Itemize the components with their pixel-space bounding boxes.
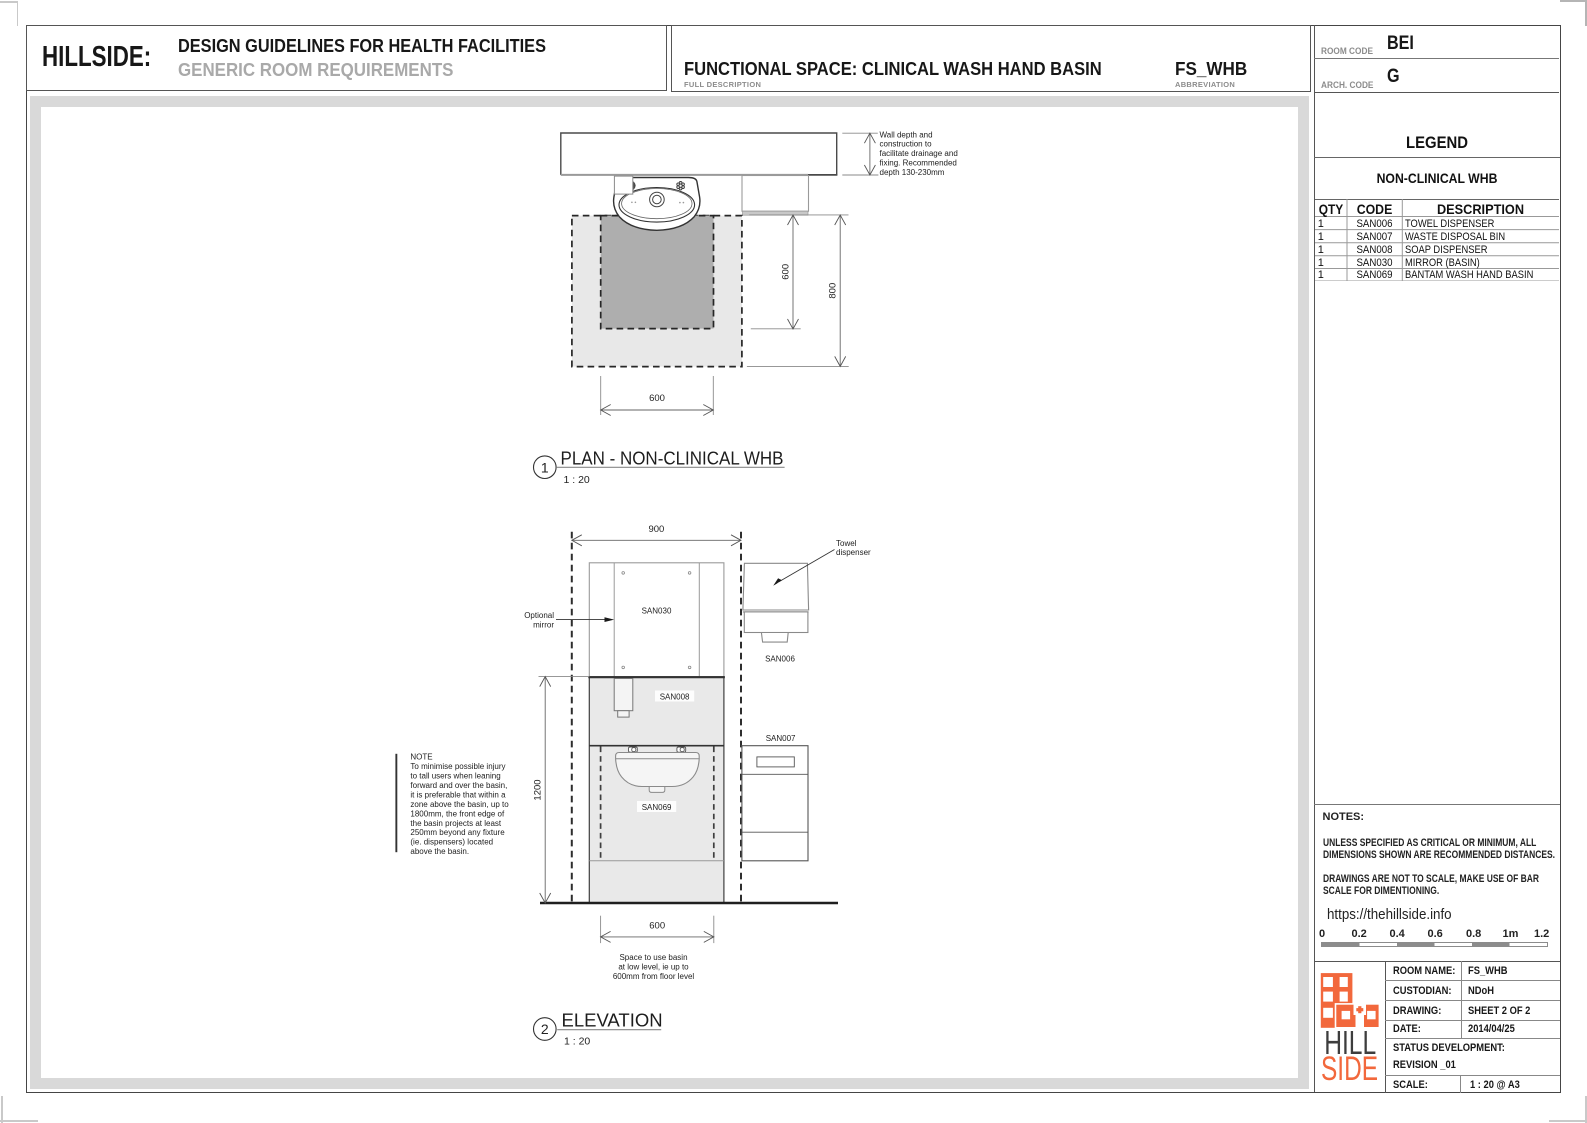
svg-text:to tall users when leaning: to tall users when leaning <box>410 772 500 781</box>
svg-text:forward and over the basin,: forward and over the basin, <box>410 781 507 790</box>
svg-text:Optional: Optional <box>524 611 554 620</box>
svg-text:NOTE: NOTE <box>410 753 432 762</box>
svg-text:facilitate drainage and: facilitate drainage and <box>880 149 958 158</box>
svg-text:SAN030: SAN030 <box>642 607 672 616</box>
svg-text:1: 1 <box>541 459 549 475</box>
svg-text:at low level, ie up to: at low level, ie up to <box>618 962 689 971</box>
svg-text:it is preferable that within a: it is preferable that within a <box>410 790 506 799</box>
svg-text:600: 600 <box>781 264 792 280</box>
svg-text:1800mm, the front edge of: 1800mm, the front edge of <box>410 809 505 818</box>
svg-text:250mm beyond any fixture: 250mm beyond any fixture <box>410 828 505 837</box>
svg-text:the basin projects at least: the basin projects at least <box>410 819 501 828</box>
svg-text:PLAN - NON-CLINICAL WHB: PLAN - NON-CLINICAL WHB <box>561 447 784 468</box>
svg-text:mirror: mirror <box>533 620 554 629</box>
svg-text:SAN006: SAN006 <box>765 655 795 664</box>
svg-text:1 : 20: 1 : 20 <box>564 474 590 486</box>
svg-text:900: 900 <box>648 524 664 535</box>
svg-text:600: 600 <box>649 921 665 932</box>
svg-text:(ie. dispensers) located: (ie. dispensers) located <box>410 838 493 847</box>
svg-text:construction to: construction to <box>880 140 933 149</box>
svg-text:Wall depth and: Wall depth and <box>880 130 933 139</box>
svg-text:depth 130-230mm: depth 130-230mm <box>880 168 945 177</box>
svg-text:dispenser: dispenser <box>836 548 871 557</box>
svg-text:above the basin.: above the basin. <box>410 847 469 856</box>
svg-text:800: 800 <box>828 283 839 299</box>
svg-text:SAN069: SAN069 <box>642 803 672 812</box>
svg-text:zone above the basin, up to: zone above the basin, up to <box>410 800 509 809</box>
svg-text:600: 600 <box>649 393 665 404</box>
svg-text:1200: 1200 <box>533 779 544 800</box>
svg-text:SAN007: SAN007 <box>766 734 796 743</box>
svg-text:600mm from floor level: 600mm from floor level <box>613 972 695 981</box>
svg-text:ELEVATION: ELEVATION <box>562 1009 663 1030</box>
svg-text:1 : 20: 1 : 20 <box>564 1036 590 1048</box>
svg-text:fixing. Recommended: fixing. Recommended <box>880 159 957 168</box>
svg-text:SAN008: SAN008 <box>660 692 690 701</box>
svg-text:Towel: Towel <box>836 539 857 548</box>
svg-text:Space to use basin: Space to use basin <box>619 953 687 962</box>
svg-text:To minimise possible injury: To minimise possible injury <box>410 762 505 771</box>
svg-text:2: 2 <box>541 1021 549 1037</box>
